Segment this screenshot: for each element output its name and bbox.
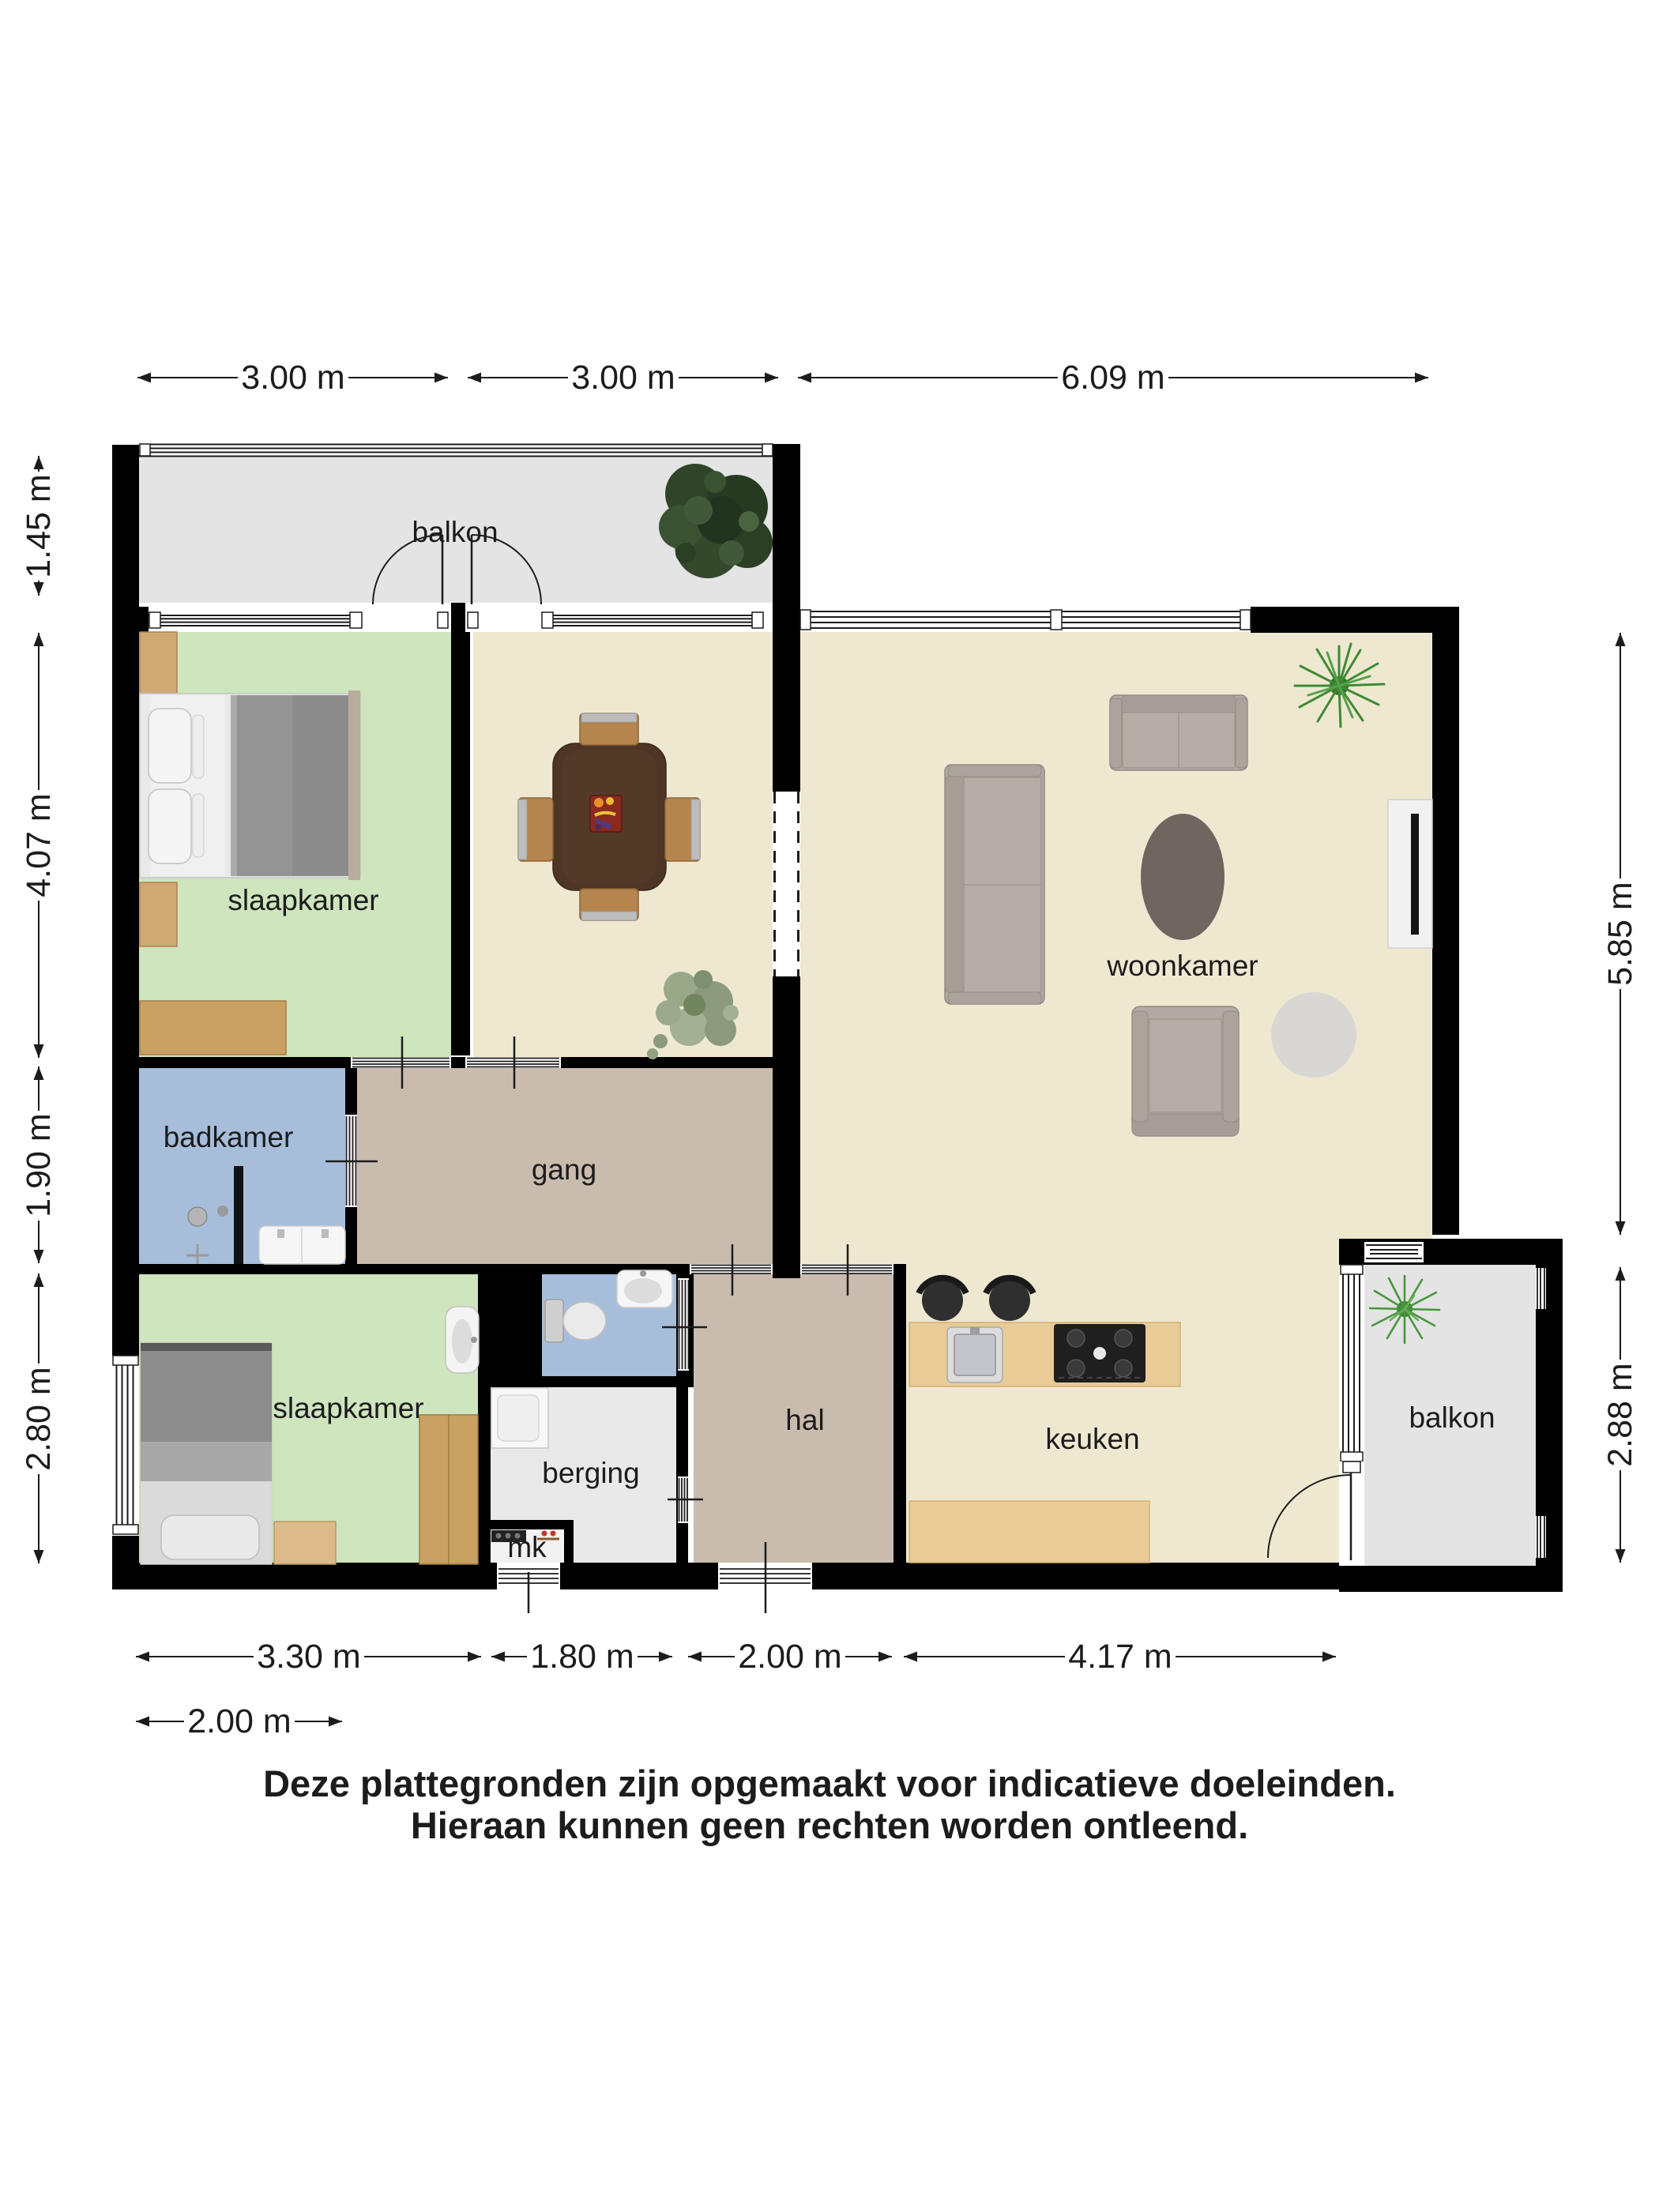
svg-text:4.17 m: 4.17 m: [1068, 1638, 1172, 1676]
svg-text:3.00 m: 3.00 m: [241, 359, 344, 397]
svg-text:mk: mk: [507, 1531, 547, 1563]
svg-text:2.88 m: 2.88 m: [1601, 1363, 1639, 1466]
svg-text:6.09 m: 6.09 m: [1061, 359, 1164, 397]
svg-text:1.45 m: 1.45 m: [20, 474, 58, 577]
svg-text:3.30 m: 3.30 m: [257, 1638, 360, 1676]
svg-text:2.80 m: 2.80 m: [20, 1367, 58, 1470]
svg-text:1.90 m: 1.90 m: [20, 1113, 58, 1217]
svg-text:Deze plattegronden zijn opgema: Deze plattegronden zijn opgemaakt voor i…: [263, 1762, 1396, 1804]
svg-text:3.00 m: 3.00 m: [571, 359, 675, 397]
svg-text:2.00 m: 2.00 m: [187, 1702, 291, 1740]
svg-text:woonkamer: woonkamer: [1106, 950, 1258, 982]
svg-text:gang: gang: [532, 1153, 596, 1186]
svg-text:hal: hal: [785, 1404, 824, 1436]
svg-text:slaapkamer: slaapkamer: [228, 884, 378, 916]
svg-text:badkamer: badkamer: [164, 1121, 294, 1153]
svg-text:balkon: balkon: [412, 516, 498, 548]
svg-text:4.07 m: 4.07 m: [20, 793, 58, 897]
svg-text:keuken: keuken: [1045, 1423, 1139, 1455]
svg-text:balkon: balkon: [1409, 1401, 1495, 1434]
svg-text:slaapkamer: slaapkamer: [273, 1392, 423, 1424]
svg-text:2.00 m: 2.00 m: [738, 1638, 841, 1676]
svg-text:berging: berging: [542, 1457, 639, 1489]
svg-text:Hieraan kunnen geen rechten wo: Hieraan kunnen geen rechten worden ontle…: [411, 1804, 1248, 1846]
svg-text:1.80 m: 1.80 m: [530, 1638, 634, 1676]
svg-text:5.85 m: 5.85 m: [1601, 882, 1639, 985]
